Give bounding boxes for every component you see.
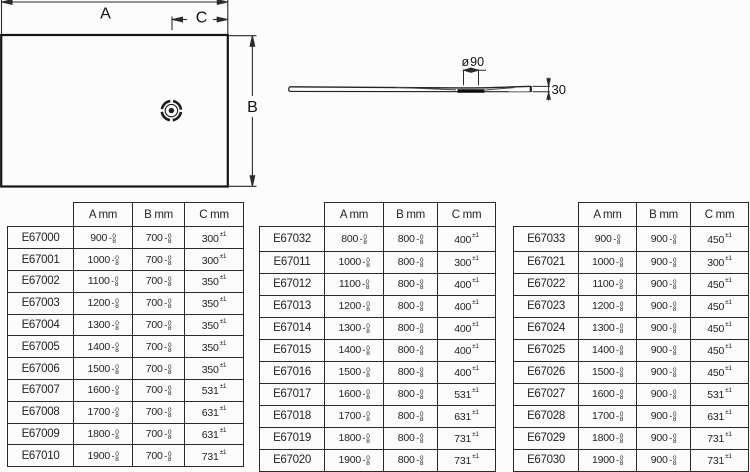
svg-text:A: A	[100, 6, 111, 23]
svg-text:ø 90: ø 90	[462, 55, 485, 69]
svg-text:B: B	[247, 99, 258, 116]
svg-text:C: C	[196, 10, 208, 27]
svg-text:30: 30	[552, 82, 566, 97]
